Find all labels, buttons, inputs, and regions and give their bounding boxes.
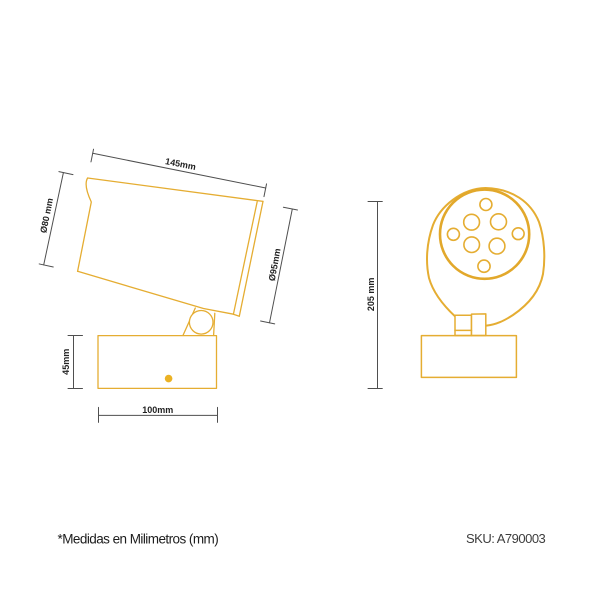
svg-text:Ø95mm: Ø95mm [267,248,283,282]
svg-text:45mm: 45mm [61,349,71,375]
svg-text:145mm: 145mm [164,156,196,172]
svg-text:*Medidas en Milimetros (mm): *Medidas en Milimetros (mm) [58,532,219,547]
svg-text:100mm: 100mm [142,405,173,415]
svg-text:205 mm: 205 mm [366,278,376,312]
svg-text:SKU: A790003: SKU: A790003 [466,531,546,546]
svg-text:Ø80 mm: Ø80 mm [38,197,55,234]
